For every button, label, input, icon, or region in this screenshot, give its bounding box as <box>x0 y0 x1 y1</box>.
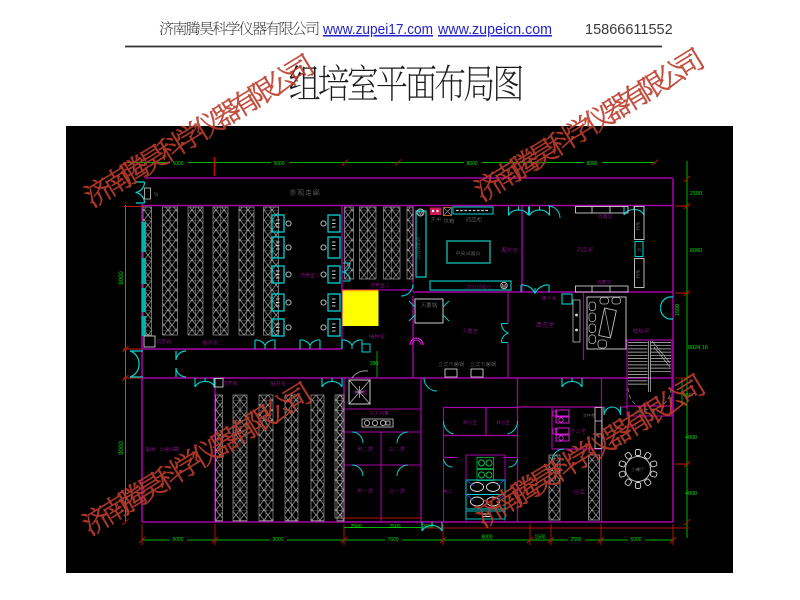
svg-text:9000: 9000 <box>272 537 283 543</box>
svg-text:www.zupei17.com: www.zupei17.com <box>322 21 433 38</box>
svg-text:15866611552: 15866611552 <box>585 22 673 38</box>
svg-text:www.zupeicn.com: www.zupeicn.com <box>437 21 552 38</box>
svg-text:5000: 5000 <box>172 161 183 167</box>
svg-text:2500: 2500 <box>570 537 581 543</box>
svg-text:M: M <box>418 211 423 217</box>
svg-text:8024.16: 8024.16 <box>688 345 708 351</box>
svg-text:2100: 2100 <box>690 191 702 197</box>
svg-text:2500: 2500 <box>350 524 361 530</box>
svg-text:5000: 5000 <box>630 537 641 543</box>
svg-text:8000: 8000 <box>481 535 492 541</box>
svg-text:8000: 8000 <box>466 161 477 167</box>
svg-text:4000: 4000 <box>685 435 697 441</box>
svg-text:6000: 6000 <box>690 248 702 254</box>
svg-text:1500: 1500 <box>534 535 545 541</box>
svg-text:9000: 9000 <box>119 441 125 455</box>
svg-text:9000: 9000 <box>119 271 125 285</box>
svg-text:2500: 2500 <box>389 524 400 530</box>
svg-text:5000: 5000 <box>172 537 183 543</box>
svg-text:7600: 7600 <box>387 537 398 543</box>
svg-text:1500: 1500 <box>675 304 681 316</box>
svg-text:4000: 4000 <box>685 491 697 497</box>
svg-text:5000: 5000 <box>273 161 284 167</box>
svg-text:M: M <box>502 284 506 290</box>
svg-text:8000: 8000 <box>586 161 597 167</box>
